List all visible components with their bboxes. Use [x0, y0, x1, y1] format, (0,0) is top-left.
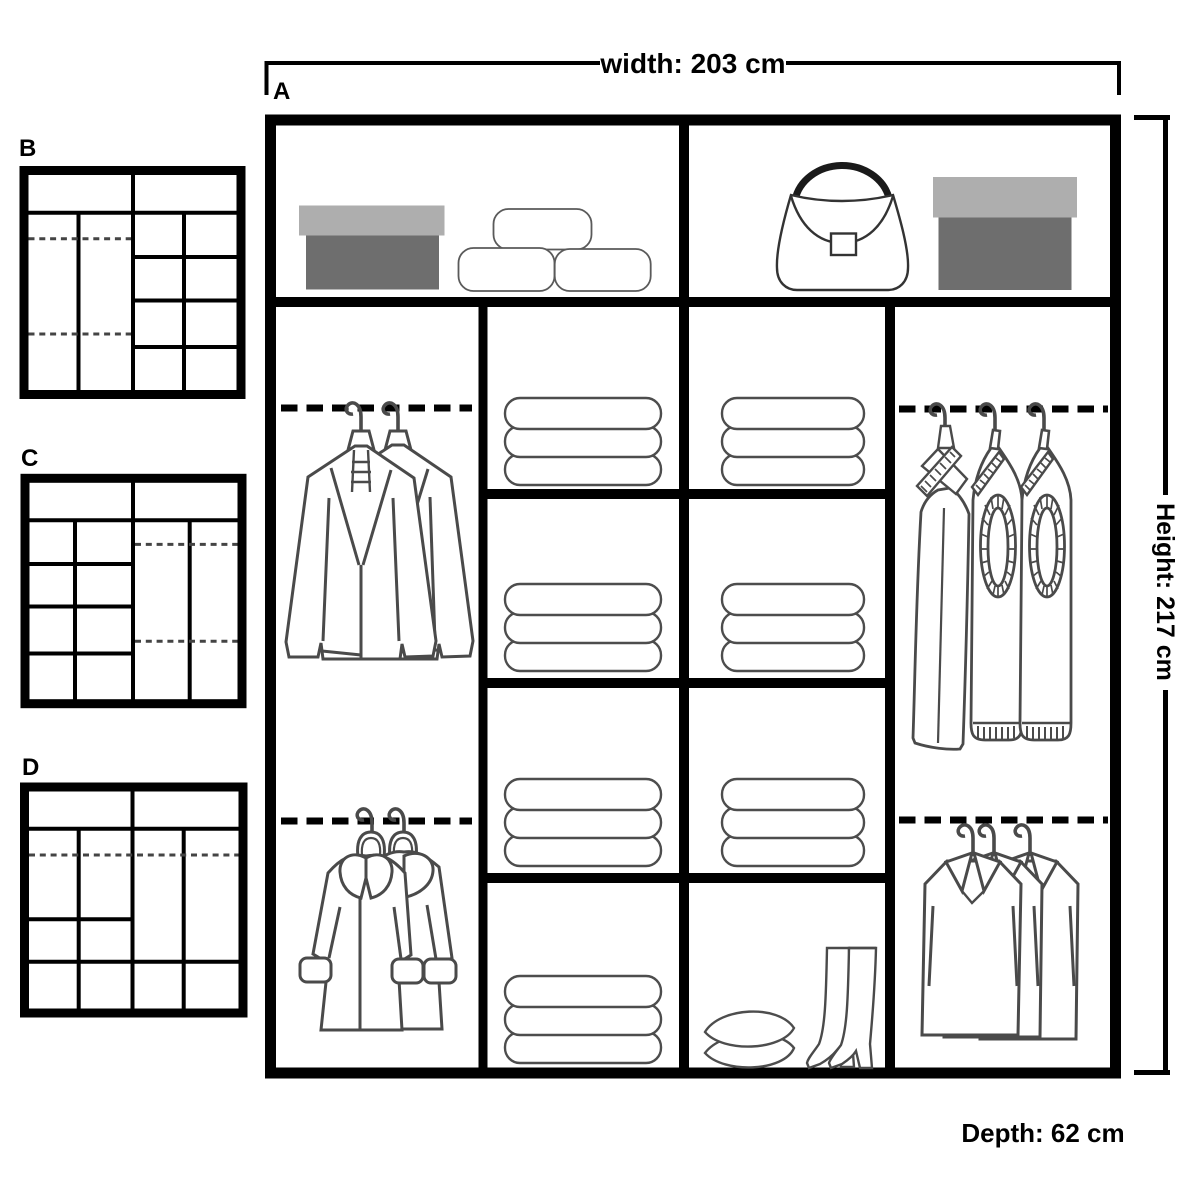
- svg-text:Depth: 62 cm: Depth: 62 cm: [961, 1118, 1124, 1148]
- svg-text:width: 203 cm: width: 203 cm: [599, 48, 785, 79]
- svg-text:C: C: [21, 445, 38, 472]
- svg-text:D: D: [22, 754, 39, 781]
- svg-text:Height: 217 cm: Height: 217 cm: [1151, 503, 1179, 681]
- svg-text:B: B: [19, 135, 36, 162]
- svg-text:A: A: [273, 78, 290, 105]
